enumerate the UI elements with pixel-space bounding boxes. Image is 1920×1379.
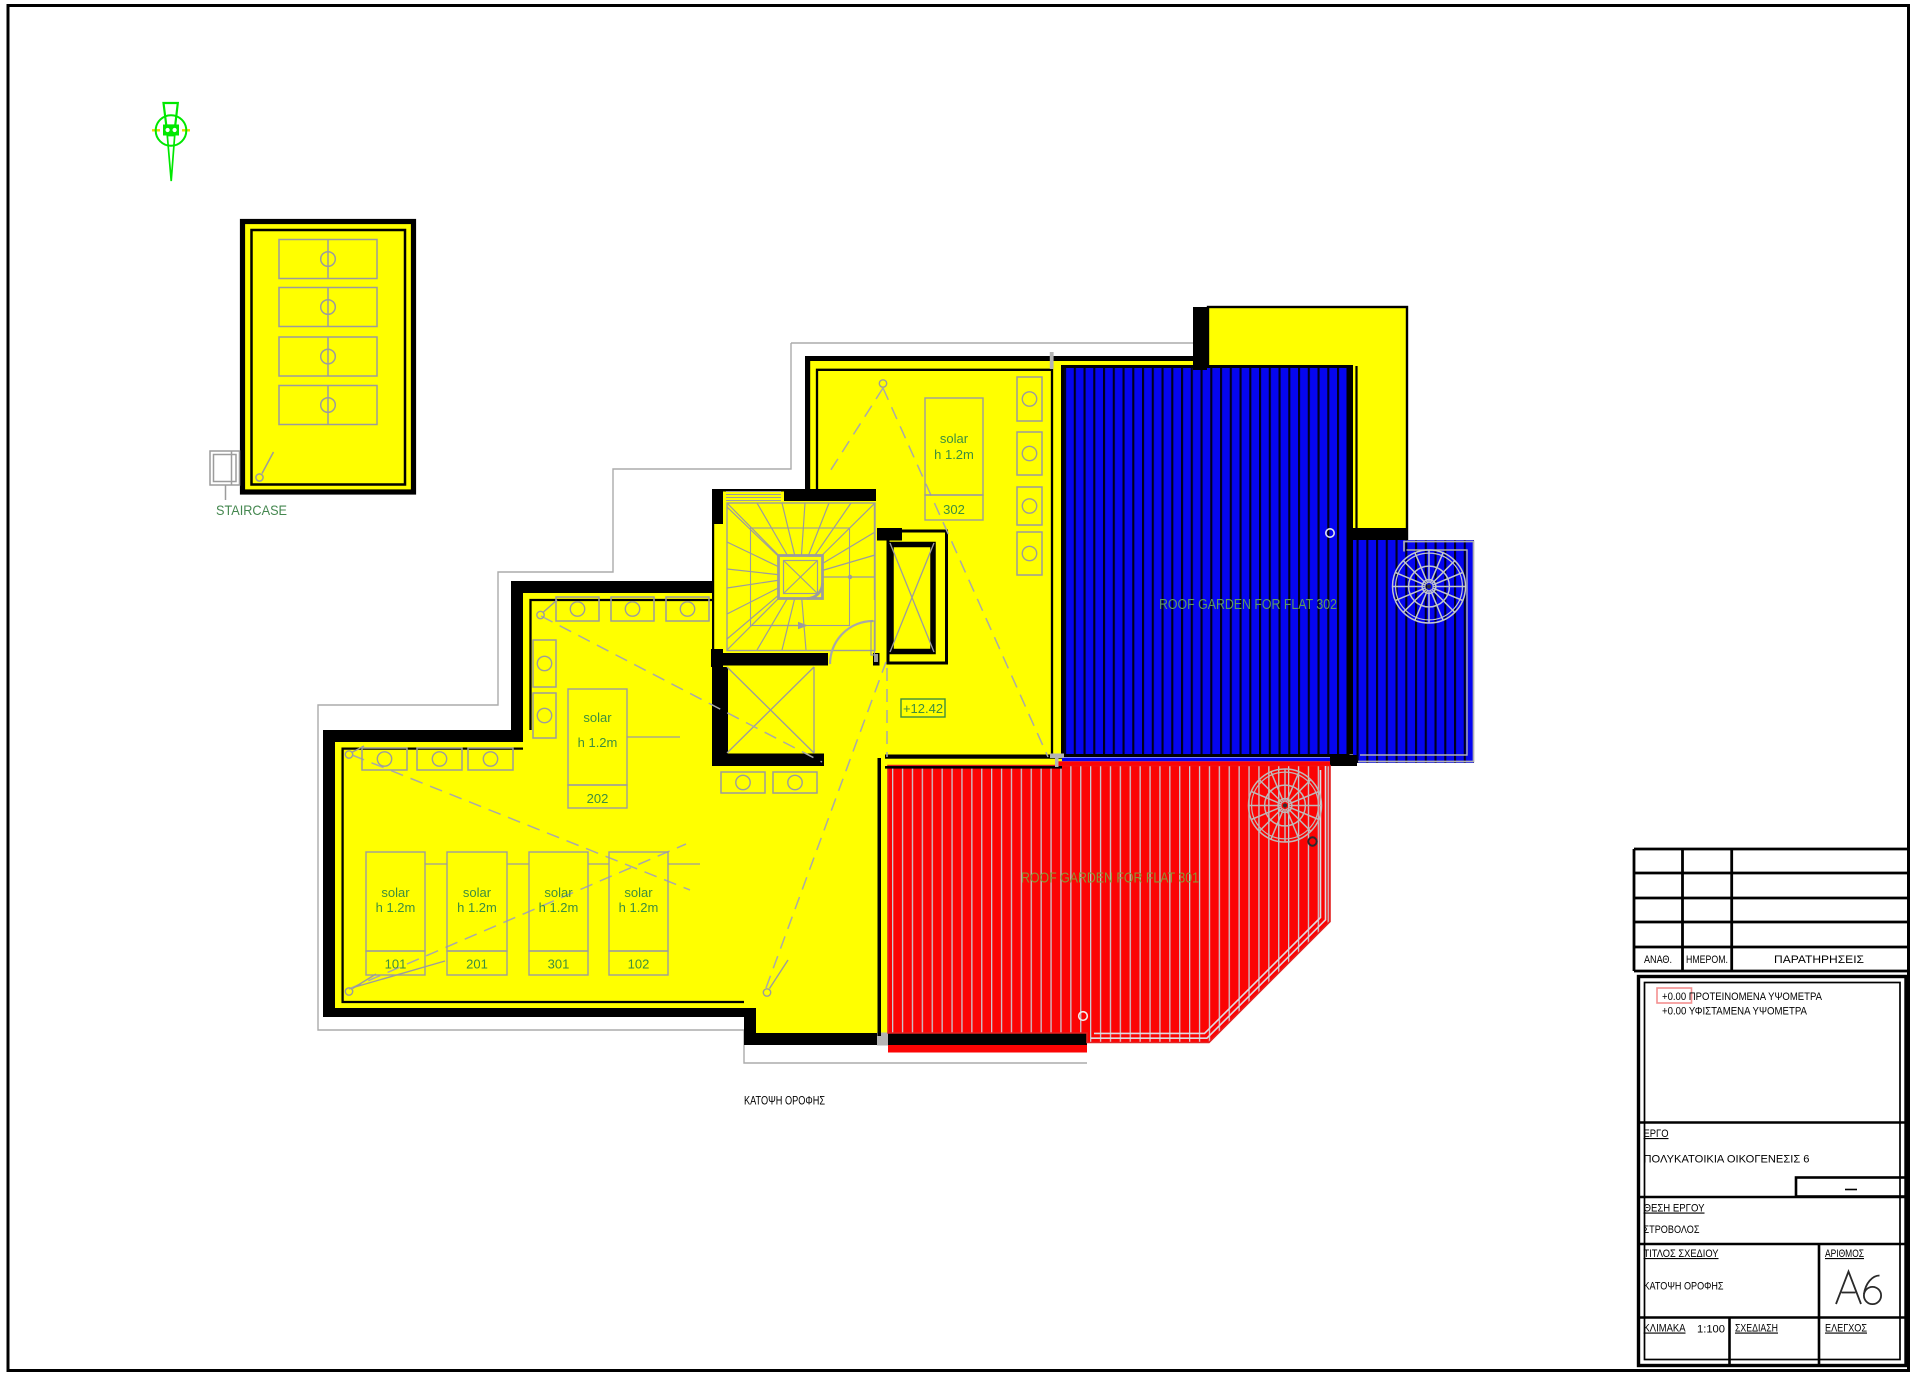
svg-text:201: 201 xyxy=(466,957,488,972)
svg-text:h 1.2m: h 1.2m xyxy=(619,900,659,915)
svg-text:+0.00 ΥΦΙΣΤΑΜΕΝΑ ΥΨΟΜΕΤΡΑ: +0.00 ΥΦΙΣΤΑΜΕΝΑ ΥΨΟΜΕΤΡΑ xyxy=(1662,1006,1807,1018)
svg-text:ΚΛΙΜΑΚΑ: ΚΛΙΜΑΚΑ xyxy=(1644,1323,1686,1335)
svg-text:h 1.2m: h 1.2m xyxy=(934,447,974,462)
svg-text:ΣΧΕΔΙΑΣΗ: ΣΧΕΔΙΑΣΗ xyxy=(1735,1323,1778,1335)
svg-text:ΘΕΣΗ ΕΡΓΟΥ: ΘΕΣΗ ΕΡΓΟΥ xyxy=(1644,1203,1705,1215)
svg-text:302: 302 xyxy=(943,502,965,517)
svg-text:solar: solar xyxy=(544,885,573,900)
svg-text:ΚΑΤΟΨΗ ΟΡΟΦΗΣ: ΚΑΤΟΨΗ ΟΡΟΦΗΣ xyxy=(1644,1281,1724,1293)
svg-text:202: 202 xyxy=(587,791,609,806)
svg-text:ΤΙΤΛΟΣ ΣΧΕΔΙΟΥ: ΤΙΤΛΟΣ ΣΧΕΔΙΟΥ xyxy=(1644,1248,1719,1260)
svg-text:301: 301 xyxy=(548,957,570,972)
svg-text:ΠΟΛΥΚΑΤΟΙΚΙΑ ΟΙΚΟΓΕΝΕΣΙΣ 6: ΠΟΛΥΚΑΤΟΙΚΙΑ ΟΙΚΟΓΕΝΕΣΙΣ 6 xyxy=(1644,1154,1810,1166)
svg-text:h 1.2m: h 1.2m xyxy=(457,900,497,915)
svg-text:STAIRCASE: STAIRCASE xyxy=(216,503,287,518)
svg-text:solar: solar xyxy=(624,885,653,900)
svg-text:ΑΡΙΘΜΟΣ: ΑΡΙΘΜΟΣ xyxy=(1825,1248,1864,1260)
svg-text:ΕΛΕΓΧΟΣ: ΕΛΕΓΧΟΣ xyxy=(1825,1323,1867,1335)
svg-text:ΠΑΡΑΤΗΡΗΣΕΙΣ: ΠΑΡΑΤΗΡΗΣΕΙΣ xyxy=(1774,954,1864,966)
svg-text:h 1.2m: h 1.2m xyxy=(539,900,579,915)
svg-text:ΗΜΕΡΟΜ.: ΗΜΕΡΟΜ. xyxy=(1686,954,1728,966)
svg-text:solar: solar xyxy=(583,710,612,725)
svg-text:ROOF GARDEN FOR FLAT 302: ROOF GARDEN FOR FLAT 302 xyxy=(1159,597,1337,613)
svg-text:solar: solar xyxy=(381,885,410,900)
svg-text:102: 102 xyxy=(628,957,650,972)
svg-text:h 1.2m: h 1.2m xyxy=(578,735,618,750)
svg-text:ΚΑΤΟΨΗ ΟΡΟΦΗΣ: ΚΑΤΟΨΗ ΟΡΟΦΗΣ xyxy=(744,1094,825,1108)
svg-text:solar: solar xyxy=(940,431,969,446)
svg-text:solar: solar xyxy=(463,885,492,900)
svg-text:ΣΤΡΟΒΟΛΟΣ: ΣΤΡΟΒΟΛΟΣ xyxy=(1644,1224,1700,1236)
svg-text:+12.42: +12.42 xyxy=(903,701,943,716)
svg-text:101: 101 xyxy=(385,957,407,972)
svg-text:ΑΝΑΘ.: ΑΝΑΘ. xyxy=(1644,954,1672,966)
svg-text:+0.00 ΠΡΟΤΕΙΝΟΜΕΝΑ ΥΨΟΜΕΤΡΑ: +0.00 ΠΡΟΤΕΙΝΟΜΕΝΑ ΥΨΟΜΕΤΡΑ xyxy=(1662,991,1822,1003)
svg-text:1:100: 1:100 xyxy=(1697,1324,1725,1336)
svg-text:ΕΡΓΟ: ΕΡΓΟ xyxy=(1644,1128,1669,1140)
svg-text:h 1.2m: h 1.2m xyxy=(376,900,416,915)
svg-text:ROOF GARDEN FOR FLAT 301: ROOF GARDEN FOR FLAT 301 xyxy=(1021,871,1199,887)
